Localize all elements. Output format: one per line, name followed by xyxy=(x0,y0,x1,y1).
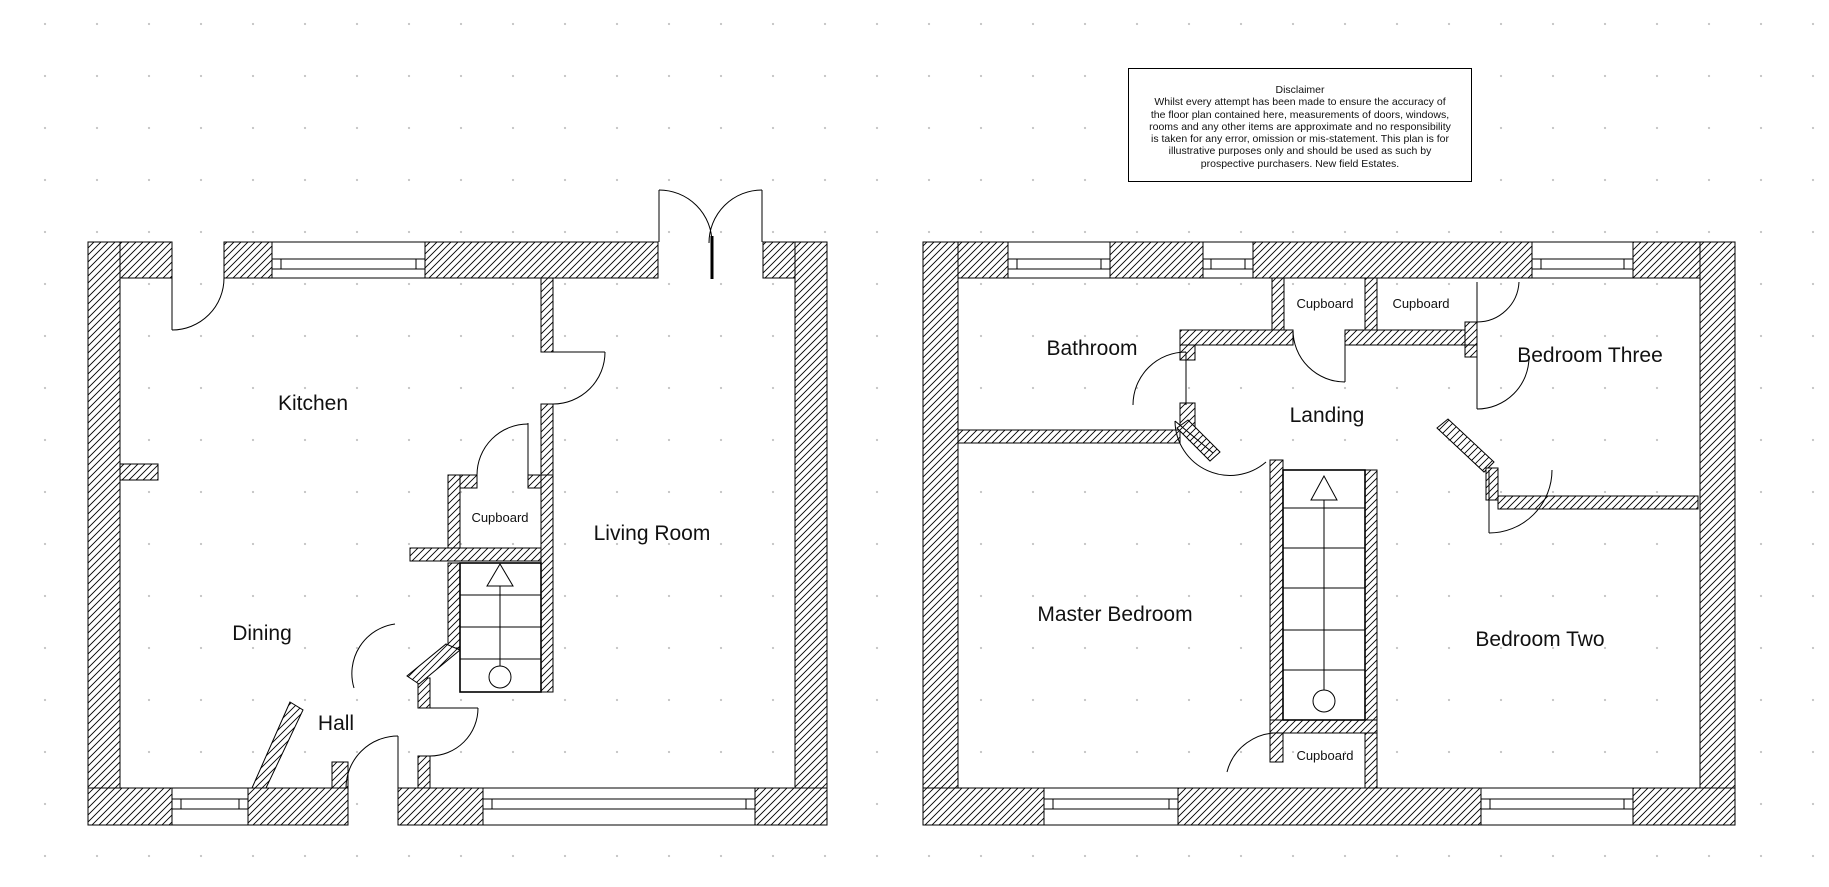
bathroom-door xyxy=(1133,352,1186,405)
room-label-bedroom-two: Bedroom Two xyxy=(1475,628,1604,651)
ground-floor-plan: Kitchen Dining Hall Living Room Cupboard xyxy=(88,190,827,825)
small-top-window xyxy=(1203,242,1253,278)
room-label-bedroom-three: Bedroom Three xyxy=(1517,344,1663,367)
kitchen-window xyxy=(272,242,425,278)
dining-hall-door xyxy=(352,624,395,688)
disclaimer-line: prospective purchasers. New field Estate… xyxy=(1129,158,1471,170)
disclaimer-line: the floor plan contained here, measureme… xyxy=(1129,109,1471,121)
interior-walls xyxy=(252,278,553,788)
front-door xyxy=(346,736,398,788)
room-label-living-room: Living Room xyxy=(594,522,711,545)
cupboard-top-right-door xyxy=(1477,282,1519,322)
room-label-hall: Hall xyxy=(318,712,354,735)
room-label-dining: Dining xyxy=(232,622,292,645)
staircase-first xyxy=(1283,470,1365,720)
first-floor-plan: Bathroom Landing Bedroom Three Master Be… xyxy=(923,242,1735,825)
disclaimer-line: is taken for any error, omission or mis-… xyxy=(1129,133,1471,145)
disclaimer-box: Disclaimer Whilst every attempt has been… xyxy=(1128,68,1472,182)
master-bedroom-window xyxy=(1044,788,1178,825)
bathroom-window xyxy=(1008,242,1110,278)
disclaimer-line: Whilst every attempt has been made to en… xyxy=(1129,96,1471,108)
french-doors xyxy=(659,190,762,279)
disclaimer-line: rooms and any other items are approximat… xyxy=(1129,121,1471,133)
dining-window xyxy=(172,788,248,825)
staircase-ground xyxy=(460,563,541,692)
room-label-cupboard-top-right: Cupboard xyxy=(1392,296,1449,311)
kitchen-living-door xyxy=(553,352,605,404)
room-label-bathroom: Bathroom xyxy=(1046,337,1137,360)
floor-plan-canvas: Kitchen Dining Hall Living Room Cupboard xyxy=(0,0,1829,887)
cupboard-top-left-door xyxy=(1293,330,1345,382)
bedroom-three-window xyxy=(1532,242,1633,278)
bedroom-two-window xyxy=(1481,788,1633,825)
room-label-master-bedroom: Master Bedroom xyxy=(1037,603,1192,626)
room-label-cupboard-ground: Cupboard xyxy=(471,510,528,525)
disclaimer-line: illustrative purposes only and should be… xyxy=(1129,145,1471,157)
dot-grid-background: Kitchen Dining Hall Living Room Cupboard xyxy=(0,0,1829,887)
cupboard-door xyxy=(477,423,528,475)
room-label-cupboard-bottom: Cupboard xyxy=(1296,748,1353,763)
room-label-kitchen: Kitchen xyxy=(278,392,348,415)
hall-living-door xyxy=(430,708,478,756)
disclaimer-title: Disclaimer xyxy=(1129,84,1471,96)
room-label-cupboard-top-left: Cupboard xyxy=(1296,296,1353,311)
kitchen-back-door xyxy=(172,278,224,330)
living-room-window xyxy=(483,788,755,825)
room-label-landing: Landing xyxy=(1290,404,1365,427)
